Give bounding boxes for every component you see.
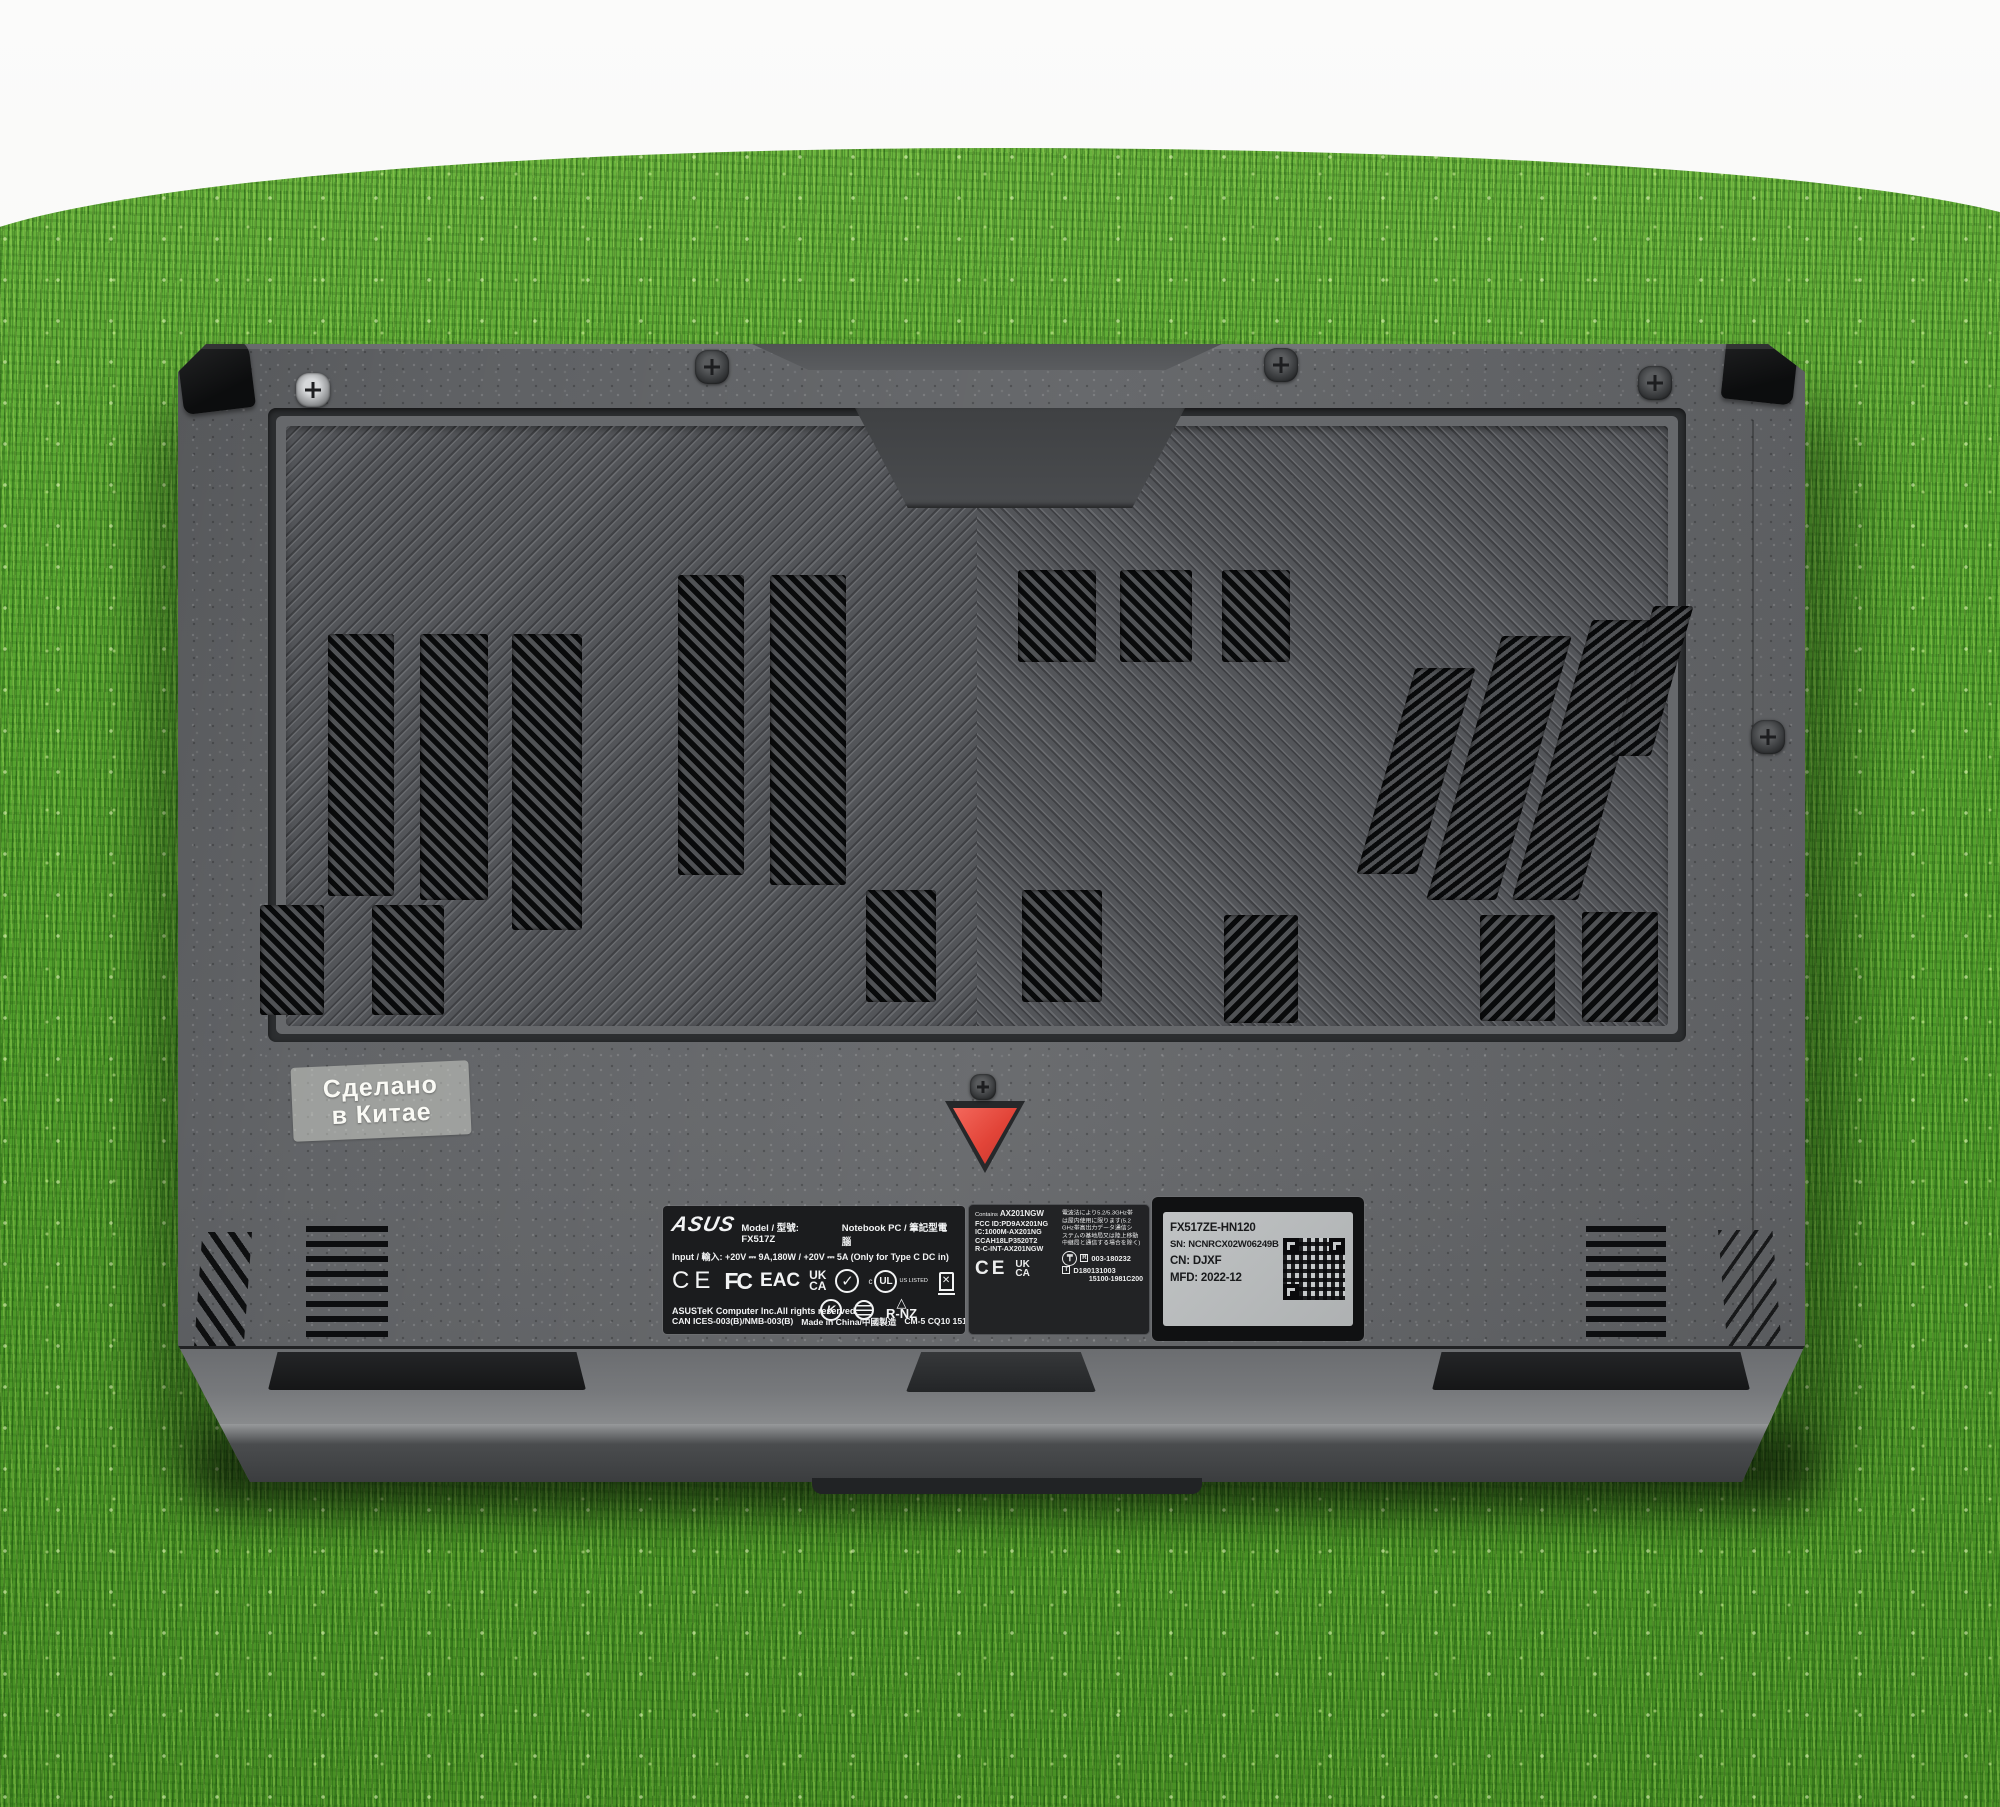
qr-code bbox=[1283, 1238, 1345, 1300]
ul-mark-icon: c UL US LISTED bbox=[868, 1270, 927, 1293]
model-text: Model / 型號: FX517Z bbox=[741, 1220, 834, 1245]
check-certification-icon: ✓ bbox=[835, 1269, 859, 1293]
jp-radio-law-line5: 中継局と通信する場合を除く) bbox=[1062, 1240, 1136, 1247]
vent-cutout bbox=[512, 634, 582, 930]
vent-cutout bbox=[372, 905, 444, 1015]
rc-text: R-C-INT-AX201NGW bbox=[975, 1245, 1058, 1254]
vent-cutout bbox=[1582, 912, 1658, 1022]
vent-cutout bbox=[1022, 890, 1102, 1002]
vent-cutout bbox=[1222, 570, 1290, 662]
top-edge-bump bbox=[752, 344, 1222, 370]
vent-cutout bbox=[328, 634, 394, 896]
front-chamfer bbox=[178, 1424, 1805, 1482]
screw bbox=[1264, 348, 1298, 382]
screw bbox=[970, 1074, 996, 1100]
cm-code-text: CM-5 CQ10 15105-0932P000 bbox=[904, 1316, 965, 1328]
screw bbox=[1751, 720, 1785, 754]
vent-cutout bbox=[866, 890, 936, 1002]
vent-cutout bbox=[420, 634, 488, 900]
vent-cutout bbox=[1224, 915, 1298, 1023]
vent-cutout bbox=[678, 575, 744, 875]
rubber-foot-front-center bbox=[906, 1352, 1096, 1392]
serial-label-inner: FX517ZE-HN120 SN: NCNRCX02W06249B CN: DJ… bbox=[1163, 1212, 1353, 1326]
sticker-line2: в Китае bbox=[331, 1099, 432, 1130]
mfd-text: MFD: 2022-12 bbox=[1170, 1270, 1279, 1287]
ce-mark-icon: CE bbox=[975, 1265, 1007, 1274]
vent-panel bbox=[286, 426, 1668, 1026]
vent-cutout bbox=[1018, 570, 1096, 662]
screw bbox=[1638, 366, 1672, 400]
rubber-foot-front-right bbox=[1432, 1352, 1750, 1390]
wireless-module-label: Contains AX201NGW FCC ID:PD9AX201NG IC:1… bbox=[968, 1204, 1150, 1335]
weee-bin-icon bbox=[939, 1272, 954, 1291]
ukca-mark-icon: UK CA bbox=[809, 1270, 826, 1292]
wireless-code: 15100-1981C200 bbox=[1062, 1276, 1143, 1283]
ce-mark-icon: CE bbox=[672, 1267, 715, 1295]
jp-radio-law-line2: は屋内使用に限ります(5.2 bbox=[1062, 1218, 1136, 1225]
right-seam-line bbox=[1752, 420, 1754, 1320]
ukca-mark-icon: UK CA bbox=[1015, 1260, 1029, 1278]
ices-text: CAN ICES-003(B)/NMB-003(B) bbox=[672, 1316, 793, 1328]
made-in-china-sticker: Сделано в Китае bbox=[290, 1060, 471, 1142]
vent-panel-top-notch bbox=[855, 408, 1185, 508]
device-type-text: Notebook PC / 筆記型電腦 bbox=[842, 1220, 956, 1248]
r-square-icon: R bbox=[1080, 1254, 1088, 1262]
ukca-bottom: CA bbox=[1015, 1269, 1029, 1278]
rubber-foot-front-left bbox=[268, 1352, 586, 1390]
t-number: D180131003 bbox=[1073, 1266, 1115, 1275]
screw bbox=[296, 373, 330, 407]
asus-logo: ASUS bbox=[669, 1213, 736, 1237]
vent-cutout bbox=[260, 905, 324, 1015]
pop-open-warning-triangle bbox=[945, 1101, 1025, 1173]
ul-prefix: c bbox=[868, 1277, 872, 1286]
jp-radio-law-line4: ステムの基地局又は陸上移動 bbox=[1062, 1233, 1136, 1240]
eac-mark-icon: EAC bbox=[760, 1270, 800, 1292]
product-photo-scene: Сделано в Китае ASUS Mo bbox=[0, 0, 2000, 1807]
fcc-mark-icon: FC bbox=[724, 1268, 751, 1295]
vent-cutout bbox=[770, 575, 846, 885]
jp-radio-law-line1: 電波法により5.2/5.3GHz帯 bbox=[1062, 1210, 1136, 1217]
vent-cutout bbox=[1480, 915, 1555, 1021]
r-number: 003-180232 bbox=[1091, 1254, 1130, 1263]
power-input-text: Input / 輸入: +20V ⎓ 9A,180W / +20V ⎓ 5A (… bbox=[672, 1250, 956, 1263]
cn-text: CN: DJXF bbox=[1170, 1253, 1279, 1270]
copyright-text: ASUSTeK Computer Inc.All rights reserved… bbox=[672, 1306, 956, 1316]
made-in-text: Made in China/中國製造 bbox=[801, 1316, 896, 1328]
vent-cutout bbox=[1120, 570, 1192, 662]
ul-circle: UL bbox=[874, 1270, 897, 1293]
serial-number-text: SN: NCNRCX02W06249B bbox=[1170, 1237, 1279, 1254]
serial-number-label: FX517ZE-HN120 SN: NCNRCX02W06249B CN: DJ… bbox=[1152, 1197, 1364, 1341]
contains-module: AX201NGW bbox=[1000, 1209, 1044, 1218]
ukca-bottom: CA bbox=[809, 1281, 826, 1292]
sku-text: FX517ZE-HN120 bbox=[1170, 1220, 1279, 1237]
giteki-mark-icon: ₸ bbox=[1062, 1251, 1077, 1266]
contains-prefix: Contains bbox=[975, 1212, 998, 1218]
screw bbox=[695, 350, 729, 384]
ul-listed-text: US LISTED bbox=[899, 1278, 927, 1284]
t-square-icon: T bbox=[1062, 1266, 1070, 1274]
jp-radio-law-line3: GHz帯高出力データ通信シ bbox=[1062, 1225, 1136, 1232]
triangle-red-fill bbox=[953, 1108, 1017, 1164]
front-center-lip bbox=[812, 1478, 1202, 1494]
regulatory-label: ASUS Model / 型號: FX517Z Notebook PC / 筆記… bbox=[663, 1206, 965, 1334]
